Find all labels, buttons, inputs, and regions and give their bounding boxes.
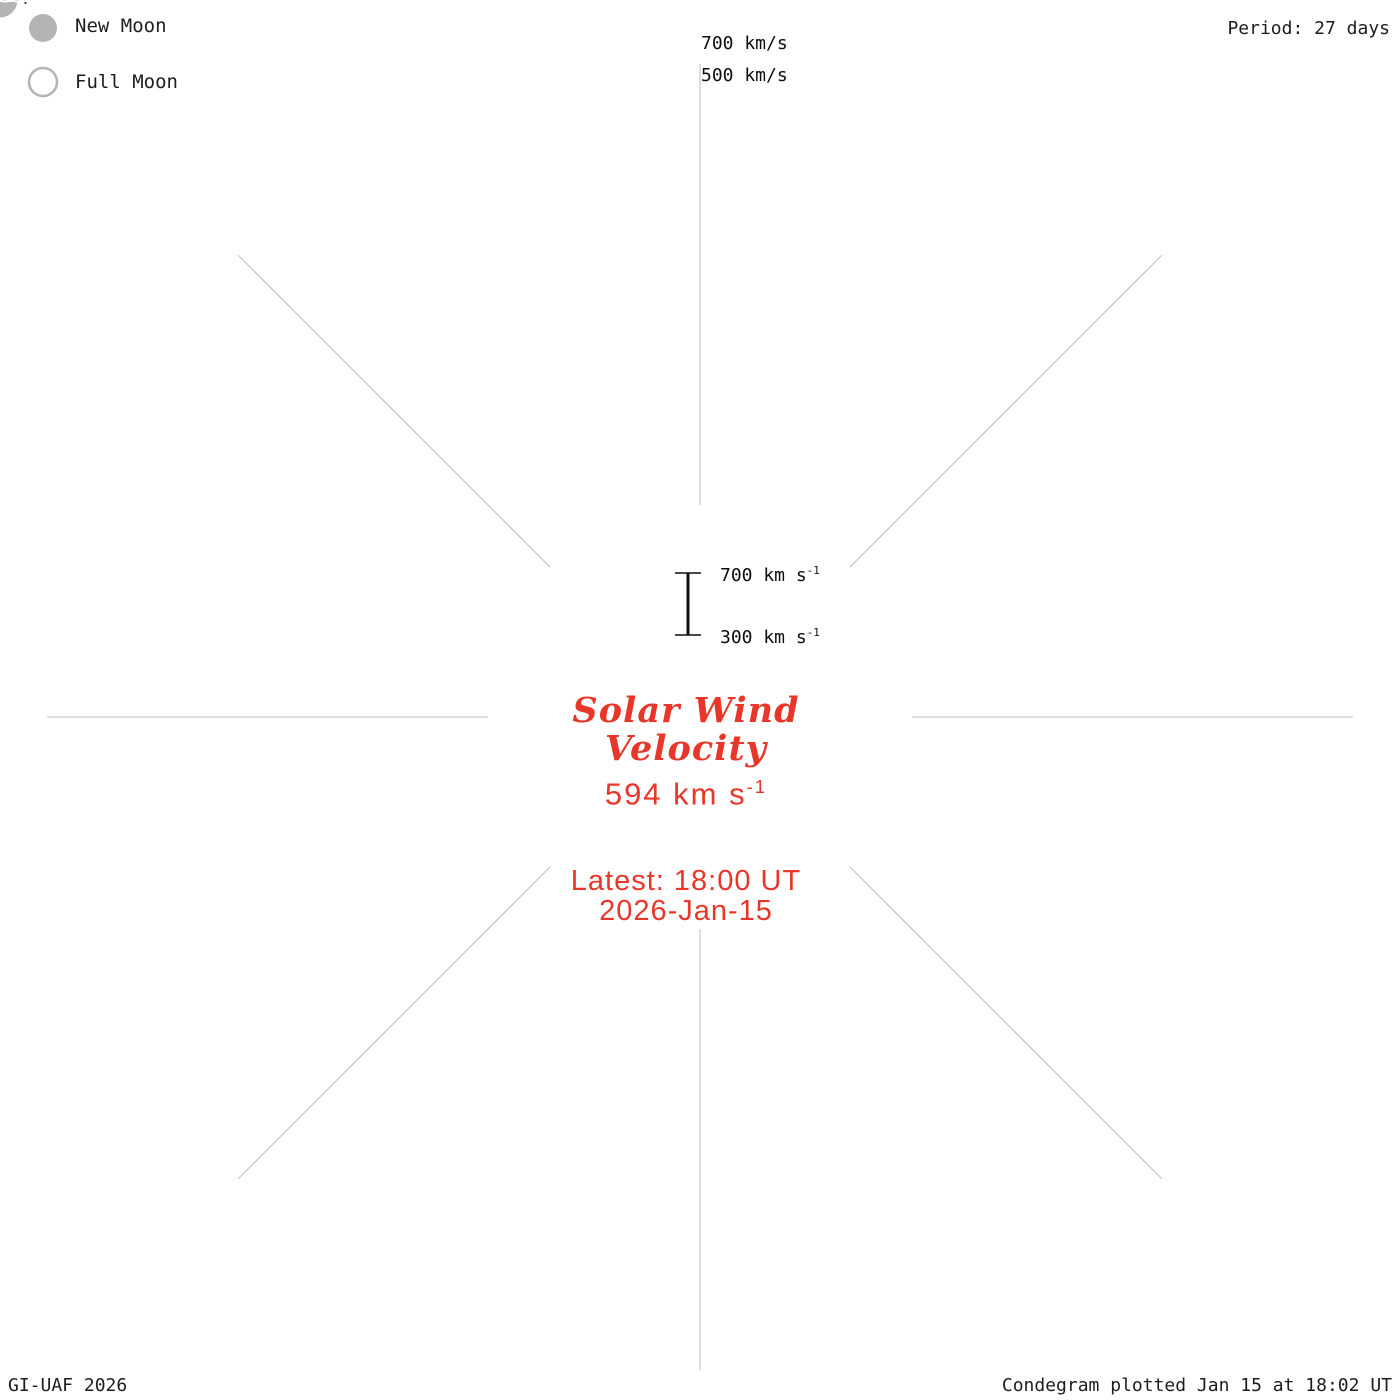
chart-title-line2: Velocity xyxy=(386,730,986,768)
velocity-axis-label-700: 700 km/s xyxy=(701,33,788,54)
scale-bar-bottom-label: 300 km s-1 xyxy=(720,626,820,648)
chart-title: Solar Wind Velocity xyxy=(386,692,986,768)
latest-date-line: 2026-Jan-15 xyxy=(386,896,986,926)
legend-full-moon-label: Full Moon xyxy=(75,71,178,93)
legend-new-moon: New Moon xyxy=(26,8,178,44)
date-labels: 03-Sep06-Sep09-Sep12-Sep15-Sep18-Sep21-S… xyxy=(0,0,34,5)
latest-velocity-value: 594 km s-1 xyxy=(386,776,986,812)
period-label: Period: 27 days xyxy=(1227,18,1390,39)
latest-time-line: Latest: 18:00 UT xyxy=(386,866,986,896)
legend-new-moon-label: New Moon xyxy=(75,15,167,37)
velocity-scale-bar: 700 km s-1 300 km s-1 xyxy=(672,566,892,646)
center-annotations: Solar Wind Velocity 594 km s-1 Latest: 1… xyxy=(386,692,986,926)
condegram-page: 03-Sep06-Sep09-Sep12-Sep15-Sep18-Sep21-S… xyxy=(0,0,1400,1400)
chart-title-line1: Solar Wind xyxy=(386,692,986,730)
credit-label: GI-UAF 2026 xyxy=(8,1375,127,1396)
scale-bar-glyph xyxy=(672,566,712,642)
date-label: 13-Jan xyxy=(0,0,34,5)
plotted-timestamp: Condegram plotted Jan 15 at 18:02 UT xyxy=(1002,1375,1392,1396)
latest-timestamp: Latest: 18:00 UT 2026-Jan-15 xyxy=(386,866,986,926)
new-moon-icon xyxy=(26,9,60,43)
moon-legend: New Moon Full Moon xyxy=(26,8,178,120)
scale-bar-top-label: 700 km s-1 xyxy=(720,564,820,586)
full-moon-icon xyxy=(26,65,60,99)
legend-full-moon: Full Moon xyxy=(26,64,178,100)
velocity-axis-label-500: 500 km/s xyxy=(701,65,788,86)
